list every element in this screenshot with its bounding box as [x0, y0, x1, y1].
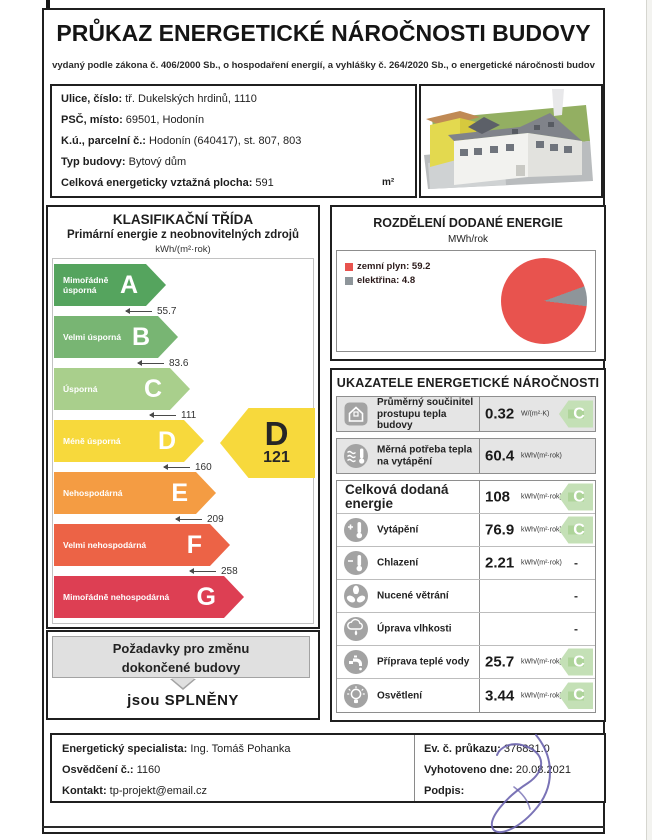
pie-chart-unit: MWh/rok — [330, 234, 606, 245]
class-badge: C — [559, 401, 593, 428]
building-photo-frame — [419, 84, 603, 198]
lighting-icon — [343, 683, 369, 709]
info-row: Celková energeticky vztažná plocha: 591 — [61, 177, 274, 189]
footer-divider — [414, 735, 415, 801]
heat-demand-icon — [343, 443, 369, 469]
classification-subtitle: Primární energie z neobnovitelných zdroj… — [46, 229, 320, 241]
threshold-arrow-icon — [150, 415, 176, 416]
building-info-box: Ulice, číslo: tř. Dukelských hrdinů, 111… — [50, 84, 417, 198]
class-arrow-b: Velmi úspornáB — [54, 316, 178, 358]
page-subtitle: vydaný podle zákona č. 406/2000 Sb., o h… — [42, 60, 605, 71]
area-unit: m² — [382, 177, 394, 188]
heating-icon — [343, 517, 369, 543]
classification-title: KLASIFIKAČNÍ TŘÍDA — [46, 212, 320, 227]
indicator-row: Chlazení 2.21 kWh/(m²·rok) - — [337, 547, 595, 580]
legend-item: zemní plyn: 59.2 — [345, 261, 430, 272]
class-arrow-c: ÚspornáC — [54, 368, 190, 410]
house-icon — [343, 401, 369, 427]
legend-swatch — [345, 277, 353, 285]
threshold-arrow-icon — [138, 363, 164, 364]
info-row: K.ú., parcelní č.: Hodonín (640417), st.… — [61, 135, 301, 147]
indicator-row: Příprava teplé vody 25.7 kWh/(m²·rok) C — [337, 646, 595, 679]
class-badge: C — [559, 484, 593, 511]
pie-chart — [501, 258, 587, 344]
pie-chart-title: ROZDĚLENÍ DODANÉ ENERGIE — [330, 216, 606, 230]
class-arrow-f: Velmi nehospodárnáF — [54, 524, 230, 566]
no-class-dash: - — [559, 622, 593, 636]
threshold-marker: 160 — [164, 462, 212, 473]
legend-item: elektřina: 4.8 — [345, 275, 415, 286]
cooling-icon — [343, 550, 369, 576]
threshold-marker: 55.7 — [126, 306, 176, 317]
issue-date-row: Vyhotoveno dne: 20.08.2021 — [424, 764, 571, 776]
threshold-arrow-icon — [176, 519, 202, 520]
indicator-row: Nucené větrání - — [337, 580, 595, 613]
certificate-number-row: Osvědčení č.: 1160 — [62, 764, 160, 776]
threshold-marker: 258 — [190, 566, 238, 577]
threshold-marker: 83.6 — [138, 358, 188, 369]
requirements-result: jsou SPLNĚNY — [48, 692, 318, 709]
indicator-row: Vytápění 76.9 kWh/(m²·rok) C — [337, 514, 595, 547]
indicator-row: Celková dodaná energie 108 kWh/(m²·rok) … — [337, 481, 595, 514]
info-row: Ulice, číslo: tř. Dukelských hrdinů, 111… — [61, 93, 257, 105]
indicator-row: Osvětlení 3.44 kWh/(m²·rok) C — [337, 679, 595, 712]
scanned-paper-edge — [646, 0, 652, 840]
threshold-arrow-icon — [190, 571, 216, 572]
pie-chart-box: zemní plyn: 59.2 elektřina: 4.8 — [336, 250, 596, 352]
contact-row: Kontakt: tp-projekt@email.cz — [62, 785, 207, 797]
class-arrow-d: Méně úspornáD — [54, 420, 204, 462]
indicator-rows-box: Celková dodaná energie 108 kWh/(m²·rok) … — [336, 480, 596, 713]
class-arrow-a: Mimořádně úspornáA — [54, 264, 166, 306]
class-arrow-e: NehospodárnáE — [54, 472, 216, 514]
requirements-box: Požadavky pro změnu dokončené budovy jso… — [46, 630, 320, 720]
classification-unit: kWh/(m²·rok) — [46, 244, 320, 255]
indicator-row: Měrná potřeba tepla na vytápění 60.4 kWh… — [336, 438, 596, 474]
legend-swatch — [345, 263, 353, 271]
info-row: Typ budovy: Bytový dům — [61, 156, 186, 168]
footer-box: Energetický specialista: Ing. Tomáš Poha… — [50, 733, 606, 803]
class-badge: C — [559, 649, 593, 676]
class-badge: C — [559, 682, 593, 709]
class-badge: C — [559, 517, 593, 544]
requirements-heading: Požadavky pro změnu dokončené budovy — [52, 636, 310, 678]
ventilation-icon — [343, 583, 369, 609]
page-title: PRŮKAZ ENERGETICKÉ NÁROČNOSTI BUDOVY — [42, 20, 605, 47]
page-bottom-border — [42, 826, 605, 828]
threshold-arrow-icon — [126, 311, 152, 312]
threshold-marker: 111 — [150, 410, 196, 421]
building-photo — [424, 89, 594, 189]
specialist-row: Energetický specialista: Ing. Tomáš Poha… — [62, 743, 291, 755]
scanned-energy-certificate: { "document": { "title": "PRŮKAZ ENERGET… — [0, 0, 652, 840]
threshold-marker: 209 — [176, 514, 224, 525]
threshold-arrow-icon — [164, 467, 190, 468]
class-arrow-g: Mimořádně nehospodárnáG — [54, 576, 244, 618]
no-class-dash: - — [559, 556, 593, 570]
indicators-title: UKAZATELE ENERGETICKÉ NÁROČNOSTI — [330, 376, 606, 390]
indicator-row: Průměrný součinitel prostupu tepla budov… — [336, 396, 596, 432]
signature-row: Podpis: — [424, 785, 464, 797]
certificate-id-row: Ev. č. průkazu: 376831.0 — [424, 743, 550, 755]
humidity-icon — [343, 616, 369, 642]
indicator-row: Úprava vlhkosti - — [337, 613, 595, 646]
info-row: PSČ, místo: 69501, Hodonín — [61, 114, 204, 126]
no-class-dash: - — [559, 589, 593, 603]
hot-water-icon — [343, 649, 369, 675]
